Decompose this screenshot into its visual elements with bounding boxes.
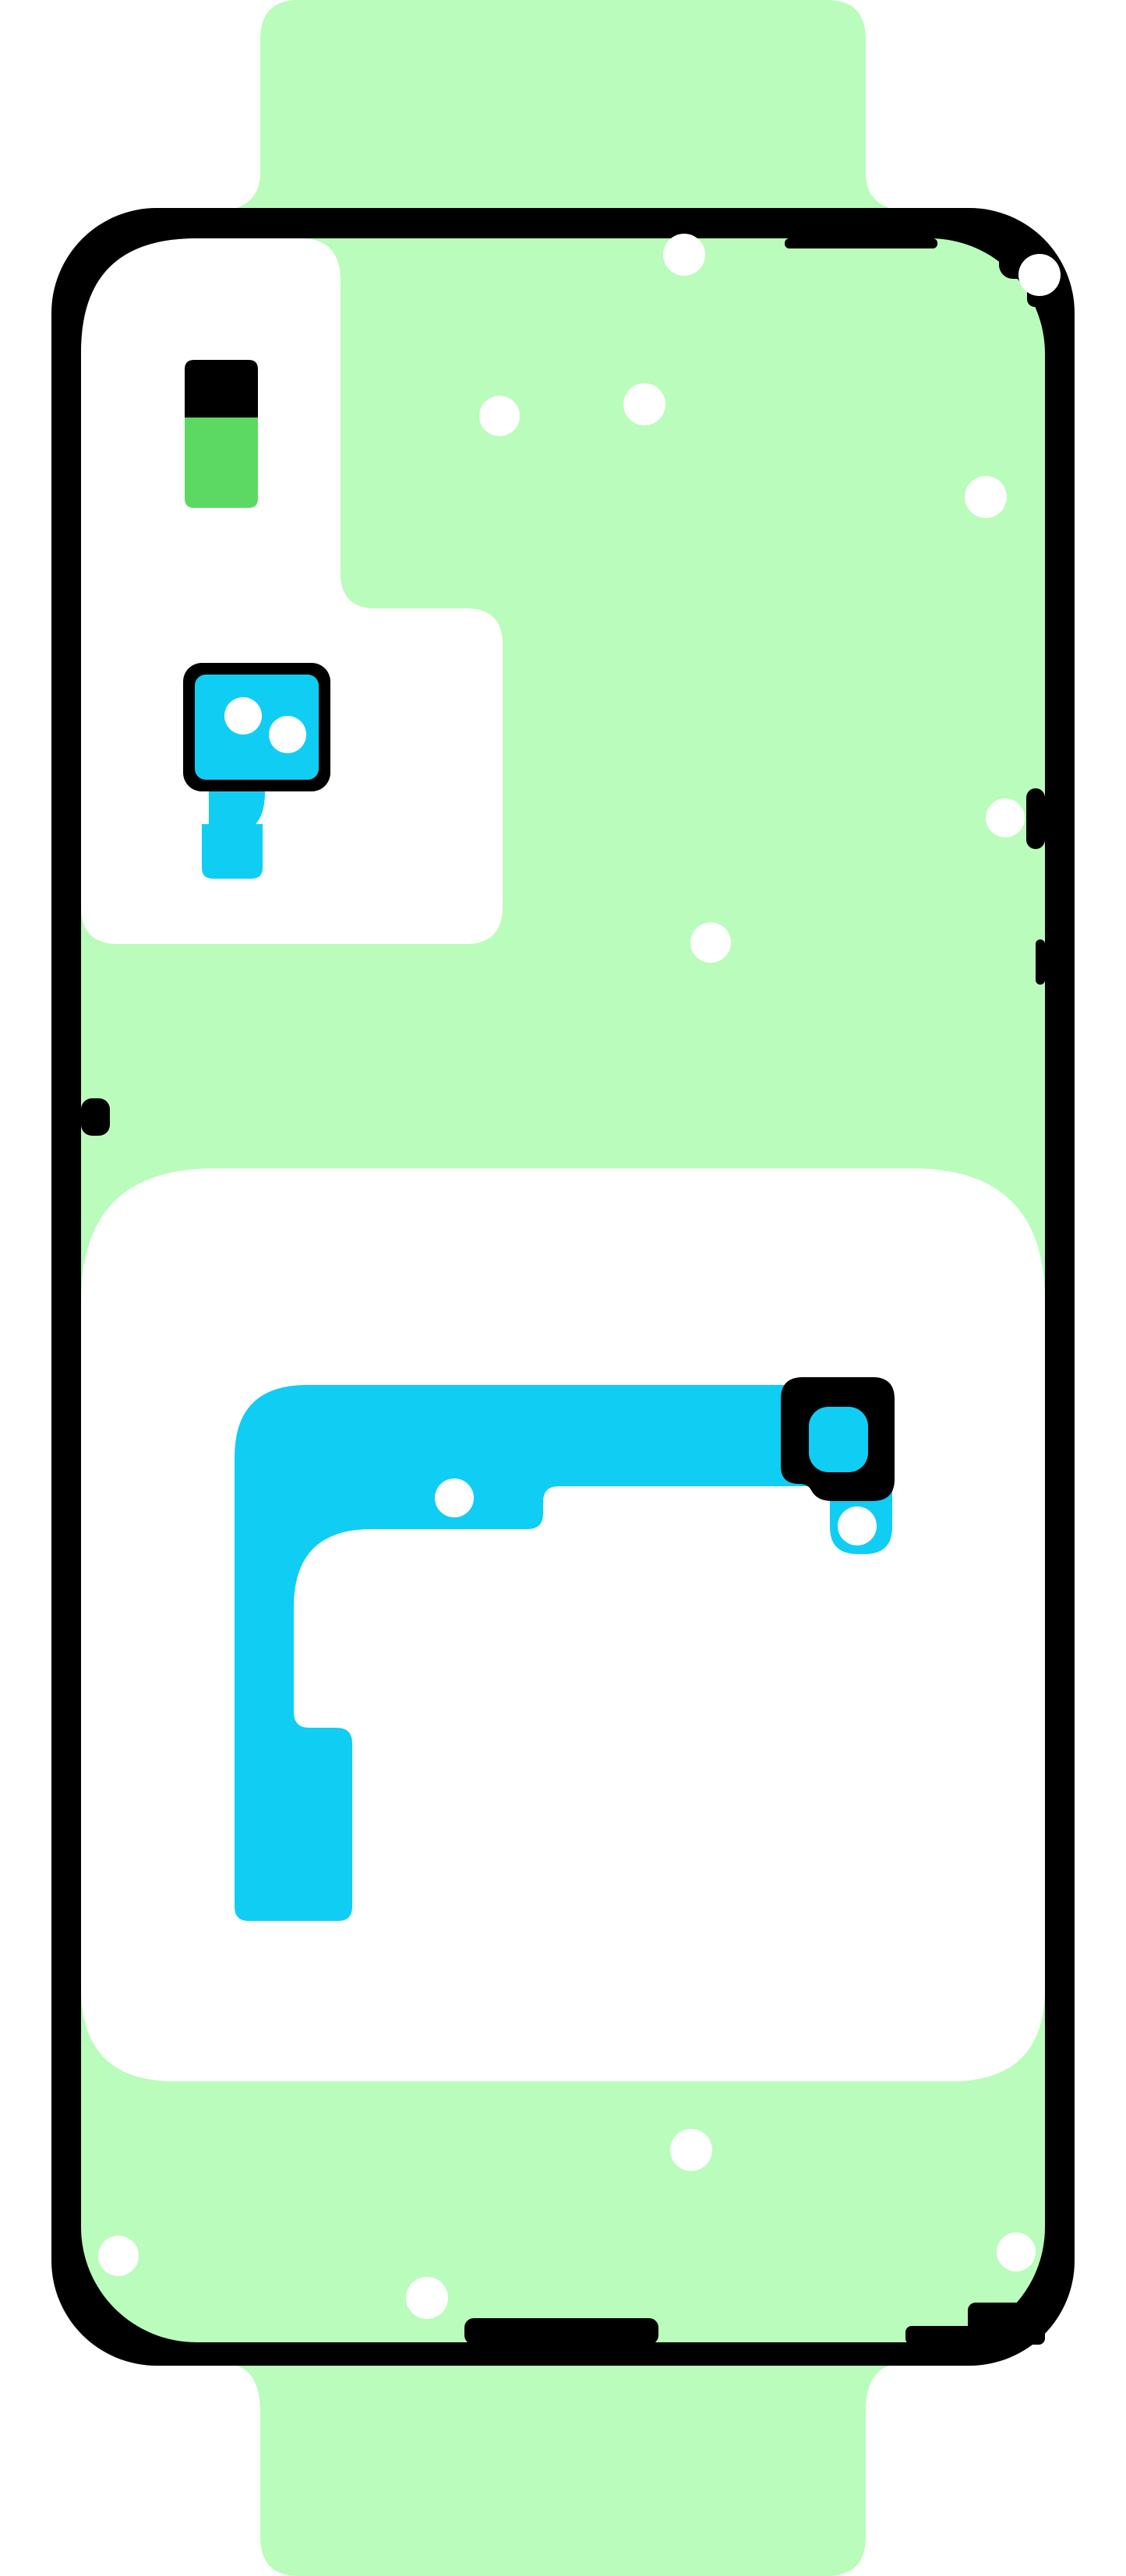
notch-left-middle xyxy=(81,1098,110,1136)
punch-hole xyxy=(670,2129,712,2171)
punch-hole xyxy=(663,234,705,276)
lobe-hole xyxy=(838,1506,877,1545)
notch-right-small xyxy=(1036,939,1045,985)
pull-tab-body xyxy=(185,418,258,508)
camera-adhesive-stem xyxy=(202,791,265,879)
punch-hole xyxy=(1018,254,1061,296)
liner-tab-top xyxy=(237,0,889,208)
punch-hole xyxy=(623,383,665,425)
punch-hole xyxy=(406,2277,448,2319)
cutout-middle-region xyxy=(81,1168,1045,2081)
punch-hole xyxy=(965,476,1007,518)
notch-top-step xyxy=(785,238,937,248)
punch-hole xyxy=(997,2232,1036,2271)
notch-right-upper xyxy=(1026,788,1045,849)
notch-bottom-speaker xyxy=(464,2318,658,2345)
camera-lens-hole xyxy=(269,716,306,753)
adhesive-sheet-illustration xyxy=(0,0,1126,2576)
punch-hole xyxy=(690,922,731,963)
rework-kit-adhesive-diagram xyxy=(0,0,1126,2576)
punch-hole xyxy=(479,396,520,436)
flash-frame-cyan-window xyxy=(809,1407,868,1472)
punch-hole xyxy=(98,2236,139,2276)
notch-bottom-stair-2 xyxy=(968,2303,1045,2345)
liner-tab-bottom xyxy=(237,2366,889,2576)
punch-hole xyxy=(986,798,1025,837)
camera-lens-hole xyxy=(224,697,262,735)
pull-tab-head xyxy=(185,360,258,418)
strip-hole xyxy=(435,1478,474,1517)
